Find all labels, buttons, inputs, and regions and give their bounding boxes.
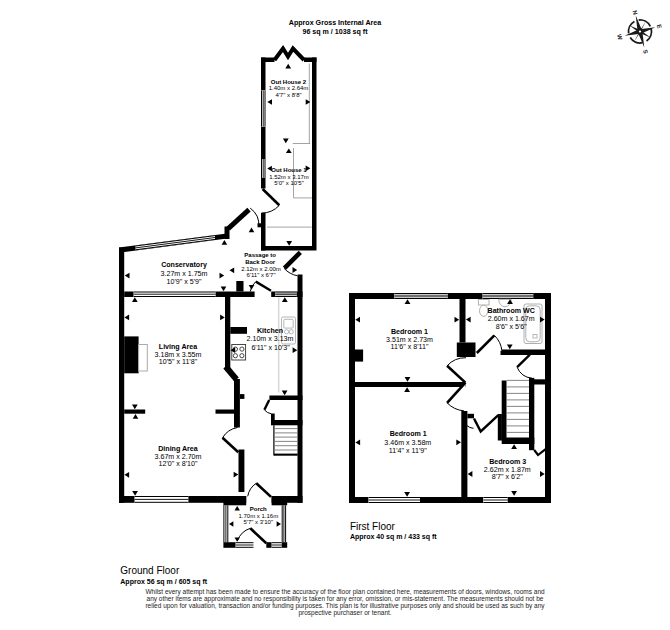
svg-text:2.12m x 2.00m: 2.12m x 2.00m [241,266,281,272]
svg-text:6'11" x 10'3": 6'11" x 10'3" [251,344,290,352]
svg-text:Bedroom 1: Bedroom 1 [390,430,427,438]
svg-text:Approx 56 sq m / 605 sq ft: Approx 56 sq m / 605 sq ft [120,578,207,586]
svg-text:5'0" x 10'5": 5'0" x 10'5" [274,180,304,186]
svg-text:Ground Floor: Ground Floor [120,565,180,576]
svg-text:1.70m x 1.16m: 1.70m x 1.16m [238,513,278,519]
svg-text:Porch: Porch [250,506,267,512]
svg-text:First Floor: First Floor [350,521,396,532]
svg-text:Approx 40 sq m / 433 sq ft: Approx 40 sq m / 433 sq ft [350,533,437,541]
svg-text:prospective purchaser or tenan: prospective purchaser or tenant. [298,609,391,617]
svg-text:11'6" x 8'11": 11'6" x 8'11" [391,343,429,351]
svg-text:Out House 1: Out House 1 [271,167,307,173]
svg-text:8'7" x 6'2": 8'7" x 6'2" [492,473,523,481]
svg-text:Bedroom 1: Bedroom 1 [391,328,428,336]
svg-text:2.10m x 3.13m: 2.10m x 3.13m [247,335,294,343]
svg-text:12'0" x 8'10": 12'0" x 8'10" [159,460,198,468]
svg-text:10'5" x 11'8": 10'5" x 11'8" [159,358,198,366]
svg-text:1.52m x 3.17m: 1.52m x 3.17m [269,174,309,180]
svg-text:3.27m x 1.75m: 3.27m x 1.75m [161,270,208,278]
svg-text:3.46m x 3.58m: 3.46m x 3.58m [384,439,431,447]
svg-text:Conservatory: Conservatory [161,261,207,269]
svg-text:Approx Gross Internal Area: Approx Gross Internal Area [289,19,381,27]
svg-text:4'7" x 8'8": 4'7" x 8'8" [275,92,301,98]
svg-text:11'4" x 11'9": 11'4" x 11'9" [389,447,427,455]
svg-text:Bedroom 3: Bedroom 3 [489,458,526,466]
svg-text:Out House 2: Out House 2 [271,79,307,85]
svg-text:96 sq m / 1038 sq ft: 96 sq m / 1038 sq ft [302,28,368,36]
svg-text:Kitchen: Kitchen [257,327,283,335]
svg-text:10'9" x 5'9": 10'9" x 5'9" [167,278,202,286]
svg-text:1.40m x 2.64m: 1.40m x 2.64m [269,85,309,91]
svg-text:6'11" x 6'7": 6'11" x 6'7" [246,272,275,278]
svg-text:Back Door: Back Door [245,259,276,265]
svg-text:8'6" x 5'6": 8'6" x 5'6" [496,323,527,331]
svg-text:Bathroom WC: Bathroom WC [488,307,535,315]
svg-text:2.60m x 1.67m: 2.60m x 1.67m [488,315,535,323]
svg-text:Passage to: Passage to [244,252,276,258]
svg-text:5'7" x 3'10": 5'7" x 3'10" [244,519,274,525]
